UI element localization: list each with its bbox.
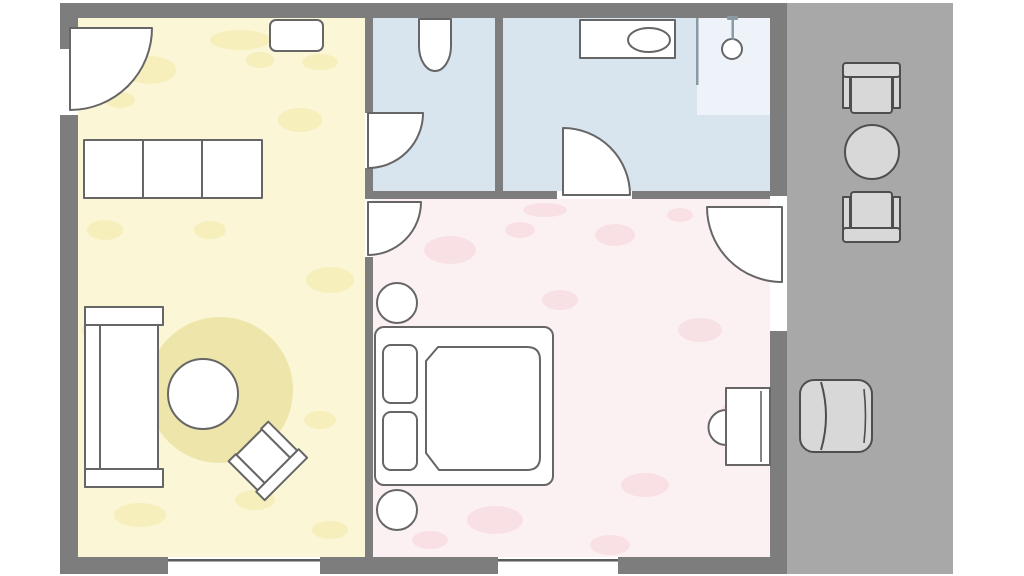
wall-bottom-middle [320, 557, 498, 574]
balcony-armchair-body [800, 380, 872, 452]
balcony-table [845, 125, 899, 179]
double-bed [375, 327, 553, 485]
nightstand-top [377, 283, 417, 323]
sofa-arm-top [85, 307, 163, 325]
wall-bottom-right [618, 557, 787, 574]
shower-head [722, 39, 742, 59]
washbasin [628, 28, 670, 52]
balcony-chair-bottom-seat [851, 192, 892, 233]
sideboard [84, 140, 262, 198]
floor-plan-canvas [0, 0, 1024, 576]
sofa [85, 307, 163, 487]
shower-head-mount [727, 16, 738, 20]
desk [726, 388, 770, 465]
window-living-room [168, 559, 320, 562]
shower-head-arm [732, 20, 735, 40]
pillow-top [383, 345, 417, 403]
duvet [426, 347, 540, 470]
wall-wc-bathroom [495, 18, 503, 191]
balcony-chair-top-back [843, 63, 900, 77]
wall-bedroom-top-left [365, 191, 557, 199]
sofa-arm-bottom [85, 469, 163, 487]
balcony-chair-top-seat [851, 72, 892, 113]
wall-divider-middle [365, 168, 373, 191]
sofa-back [85, 307, 100, 487]
coffee-table [168, 359, 238, 429]
balcony-chair-top [843, 63, 900, 113]
wall-top [60, 3, 787, 18]
wall-divider-upper [365, 18, 373, 113]
floor-plan-svg [0, 0, 1024, 576]
shower-glass [696, 18, 699, 85]
floors-layer [78, 3, 953, 574]
wall-left-lower [60, 115, 78, 574]
balcony-chair-bottom-back [843, 228, 900, 242]
wall-divider-lower [365, 257, 373, 557]
wall-right-lower [770, 331, 787, 574]
balcony-chair-bottom [843, 192, 900, 242]
pillow-bottom [383, 412, 417, 470]
sofa-seat [100, 325, 158, 469]
wall-right-upper [770, 18, 787, 196]
wall-cabinet [270, 20, 323, 51]
wall-bottom-left [60, 557, 168, 574]
wall-bedroom-top-right [632, 191, 770, 199]
toilet [419, 19, 451, 71]
nightstand-bottom [377, 490, 417, 530]
balcony-armchair [800, 380, 872, 452]
sideboard-body [84, 140, 262, 198]
window-bedroom [498, 559, 618, 562]
desk-top [726, 388, 770, 465]
